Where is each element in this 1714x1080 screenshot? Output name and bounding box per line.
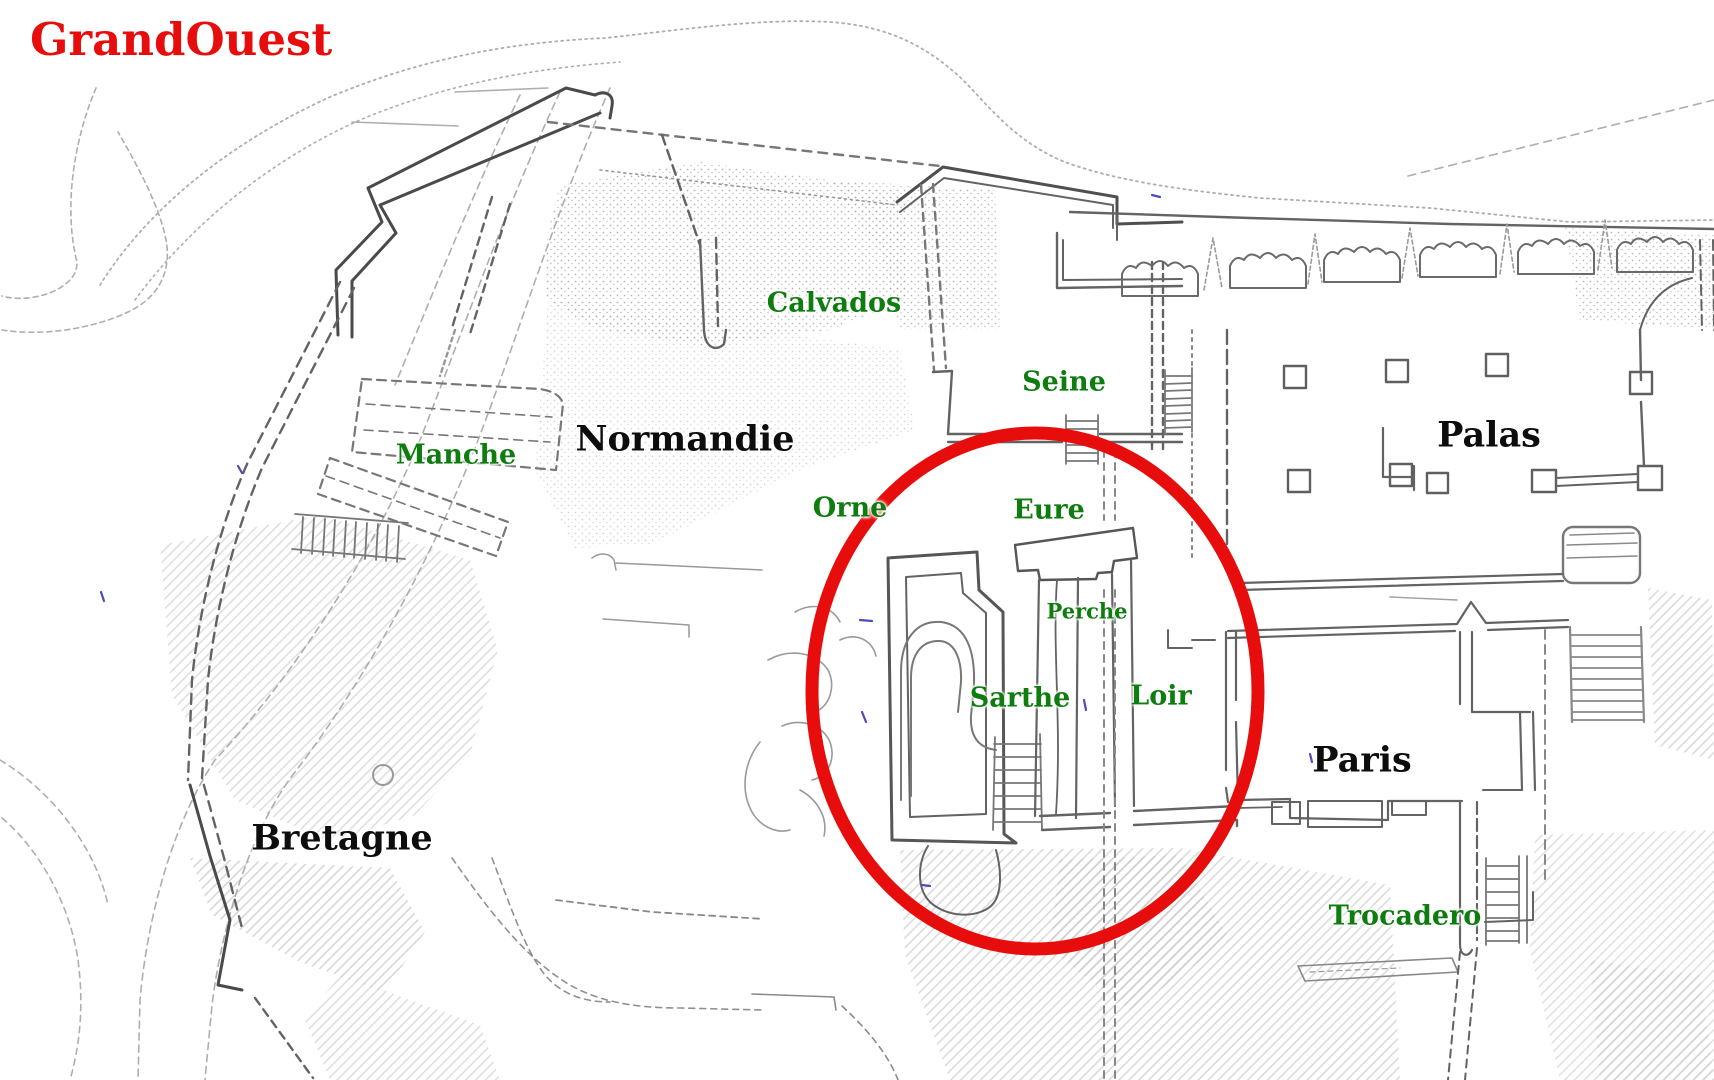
place-label-manche: Manche (396, 442, 516, 469)
place-label-perche: Perche (1046, 601, 1127, 622)
area-label-palas: Palas (1437, 418, 1541, 453)
place-label-orne: Orne (813, 495, 888, 522)
area-label-bretagne: Bretagne (251, 821, 432, 856)
area-label-paris: Paris (1312, 743, 1412, 778)
place-label-calvados: Calvados (767, 290, 902, 317)
place-label-loir: Loir (1130, 683, 1191, 710)
area-label-normandie: Normandie (576, 422, 795, 457)
place-label-eure: Eure (1013, 497, 1085, 524)
map-title: GrandOuest (22, 14, 344, 68)
map-canvas: GrandOuest Normandie Bretagne Palas Pari… (0, 0, 1714, 1080)
place-label-seine: Seine (1022, 369, 1106, 396)
place-label-trocadero: Trocadero (1329, 903, 1482, 930)
place-label-sarthe: Sarthe (970, 685, 1071, 712)
